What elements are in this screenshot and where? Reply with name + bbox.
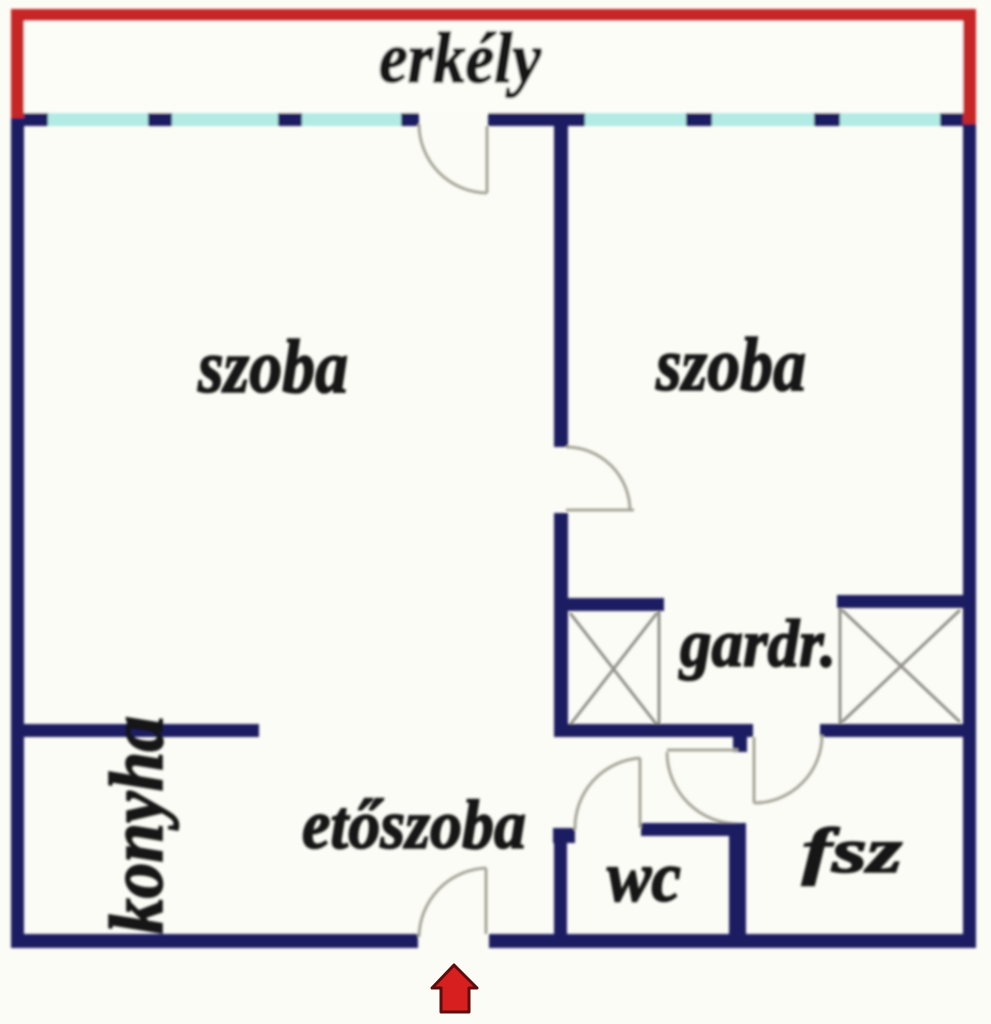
svg-text:szoba: szoba — [197, 325, 348, 409]
svg-text:konyha: konyha — [95, 716, 179, 934]
svg-text:etőszoba: etőszoba — [302, 787, 526, 864]
svg-text:wc: wc — [607, 837, 681, 917]
svg-text:szoba: szoba — [655, 323, 806, 407]
svg-text:erkély: erkély — [379, 18, 542, 98]
svg-text:gardr.: gardr. — [678, 605, 836, 681]
svg-text:fsz: fsz — [802, 815, 902, 886]
